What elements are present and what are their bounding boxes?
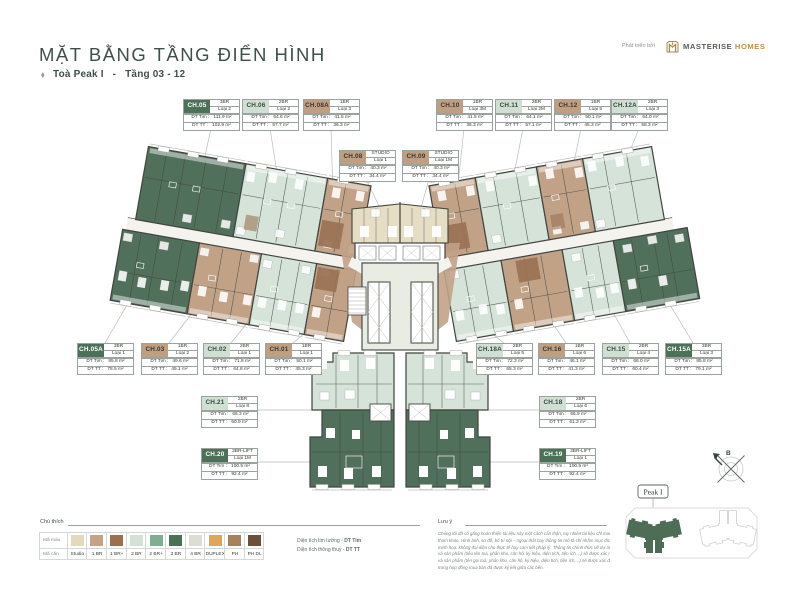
svg-text:B: B [726,450,731,457]
svg-text:Peak I: Peak I [644,488,663,497]
